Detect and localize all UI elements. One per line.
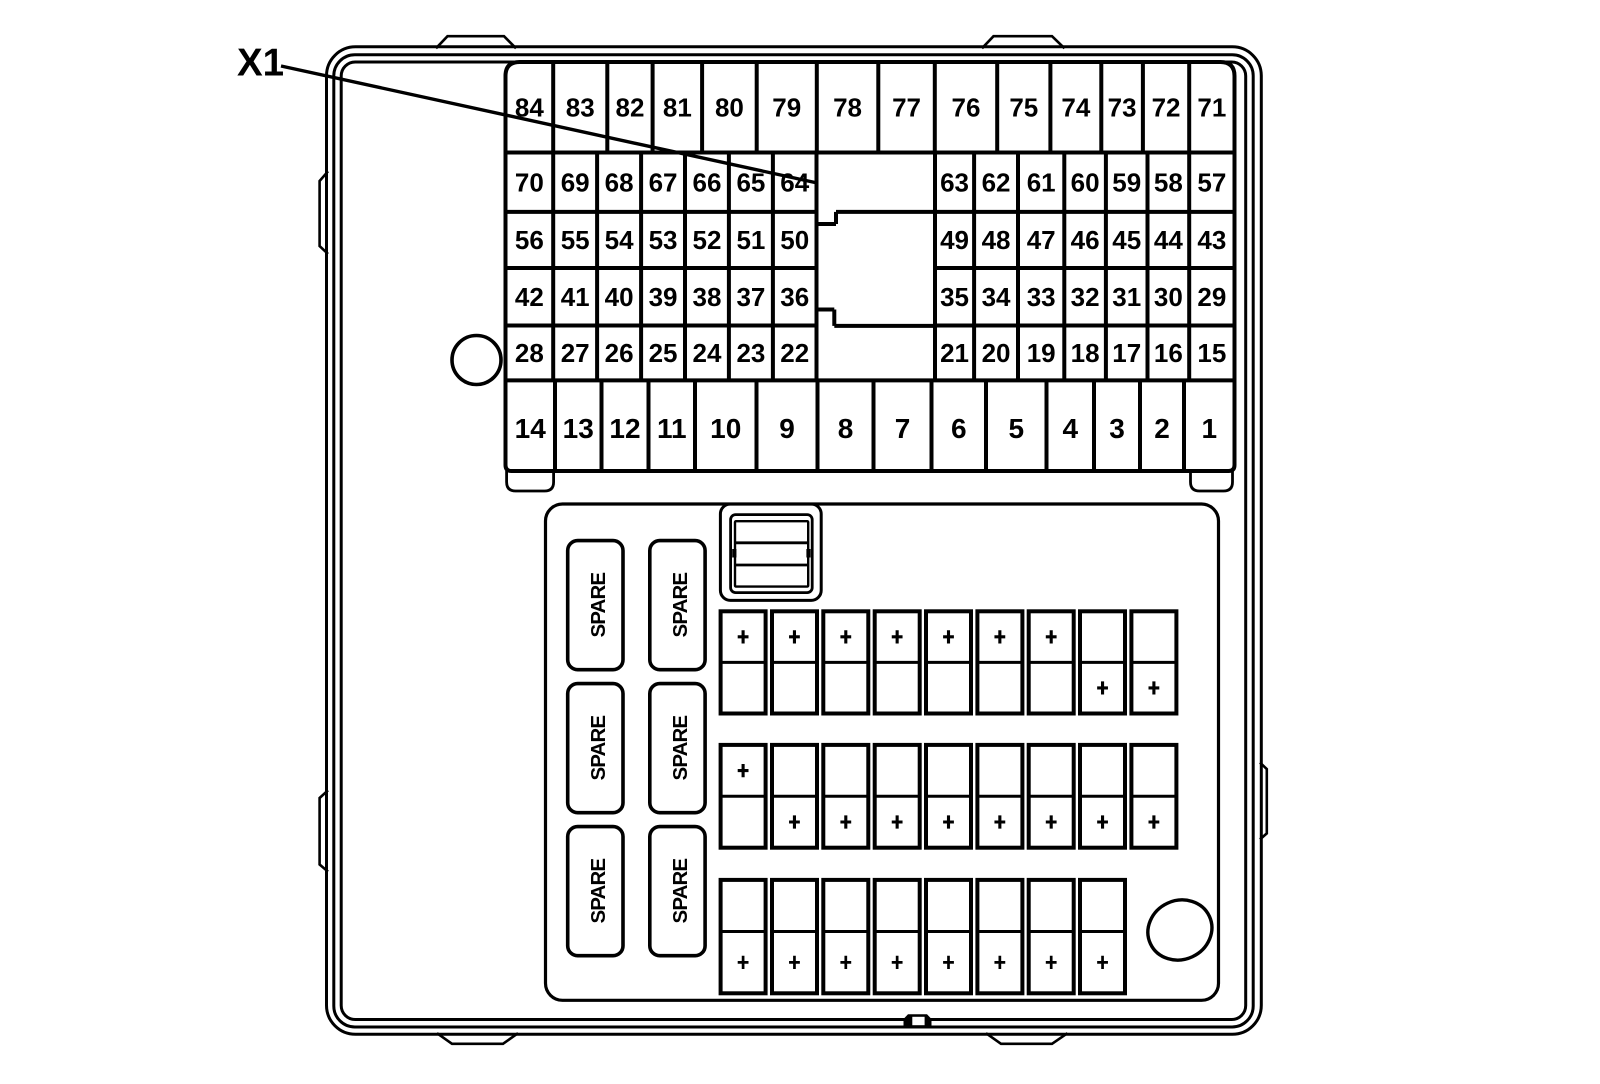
svg-text:76: 76	[952, 93, 981, 123]
svg-text:SPARE: SPARE	[587, 573, 610, 638]
svg-text:28: 28	[515, 338, 544, 368]
svg-text:X1: X1	[237, 42, 284, 85]
svg-text:12: 12	[609, 413, 640, 444]
svg-text:46: 46	[1071, 225, 1100, 255]
svg-text:73: 73	[1108, 93, 1137, 123]
svg-text:3: 3	[1109, 413, 1125, 444]
svg-text:59: 59	[1112, 167, 1141, 197]
svg-text:29: 29	[1197, 282, 1226, 312]
svg-text:48: 48	[982, 225, 1011, 255]
svg-text:71: 71	[1197, 93, 1226, 123]
svg-text:49: 49	[940, 225, 969, 255]
svg-text:80: 80	[715, 93, 744, 123]
svg-text:45: 45	[1112, 225, 1141, 255]
svg-text:65: 65	[736, 167, 765, 197]
svg-text:13: 13	[563, 413, 594, 444]
svg-text:56: 56	[515, 225, 544, 255]
svg-text:8: 8	[838, 413, 854, 444]
svg-text:81: 81	[663, 93, 692, 123]
svg-text:36: 36	[780, 282, 809, 312]
svg-text:47: 47	[1027, 225, 1056, 255]
svg-text:17: 17	[1112, 338, 1141, 368]
svg-text:43: 43	[1197, 225, 1226, 255]
svg-text:35: 35	[940, 282, 969, 312]
svg-text:58: 58	[1154, 167, 1183, 197]
svg-text:32: 32	[1071, 282, 1100, 312]
svg-text:62: 62	[982, 167, 1011, 197]
svg-text:SPARE: SPARE	[587, 859, 610, 924]
svg-text:64: 64	[780, 167, 809, 197]
svg-text:6: 6	[951, 413, 967, 444]
svg-text:SPARE: SPARE	[587, 716, 610, 781]
svg-text:SPARE: SPARE	[669, 859, 692, 924]
svg-text:1: 1	[1201, 413, 1217, 444]
svg-text:84: 84	[515, 93, 544, 123]
svg-text:79: 79	[772, 93, 801, 123]
svg-text:33: 33	[1027, 282, 1056, 312]
svg-text:2: 2	[1154, 413, 1170, 444]
svg-text:23: 23	[736, 338, 765, 368]
svg-text:69: 69	[561, 167, 590, 197]
svg-text:55: 55	[561, 225, 590, 255]
svg-text:27: 27	[561, 338, 590, 368]
svg-text:5: 5	[1008, 413, 1024, 444]
svg-text:SPARE: SPARE	[669, 573, 692, 638]
svg-text:9: 9	[779, 413, 795, 444]
svg-text:83: 83	[566, 93, 595, 123]
svg-text:21: 21	[940, 338, 969, 368]
svg-text:44: 44	[1154, 225, 1183, 255]
svg-text:4: 4	[1062, 413, 1078, 444]
svg-text:53: 53	[649, 225, 678, 255]
svg-text:22: 22	[780, 338, 809, 368]
svg-text:39: 39	[649, 282, 678, 312]
svg-text:63: 63	[940, 167, 969, 197]
svg-text:40: 40	[605, 282, 634, 312]
svg-text:30: 30	[1154, 282, 1183, 312]
svg-text:7: 7	[895, 413, 911, 444]
svg-text:37: 37	[736, 282, 765, 312]
svg-text:38: 38	[692, 282, 721, 312]
svg-text:11: 11	[657, 413, 687, 444]
svg-text:SPARE: SPARE	[669, 716, 692, 781]
svg-text:54: 54	[605, 225, 634, 255]
svg-text:78: 78	[833, 93, 862, 123]
svg-text:20: 20	[982, 338, 1011, 368]
svg-text:34: 34	[982, 282, 1011, 312]
svg-text:75: 75	[1009, 93, 1038, 123]
svg-text:41: 41	[561, 282, 590, 312]
svg-text:16: 16	[1154, 338, 1183, 368]
svg-text:51: 51	[736, 225, 765, 255]
svg-text:14: 14	[515, 413, 547, 444]
svg-text:67: 67	[649, 167, 678, 197]
svg-text:15: 15	[1197, 338, 1226, 368]
svg-text:74: 74	[1061, 93, 1090, 123]
svg-text:18: 18	[1071, 338, 1100, 368]
svg-text:82: 82	[615, 93, 644, 123]
svg-text:10: 10	[710, 413, 741, 444]
svg-text:57: 57	[1197, 167, 1226, 197]
svg-text:42: 42	[515, 282, 544, 312]
svg-text:72: 72	[1152, 93, 1181, 123]
svg-text:25: 25	[649, 338, 678, 368]
svg-text:50: 50	[780, 225, 809, 255]
svg-text:31: 31	[1112, 282, 1141, 312]
svg-text:61: 61	[1027, 167, 1056, 197]
svg-text:19: 19	[1027, 338, 1056, 368]
svg-text:70: 70	[515, 167, 544, 197]
svg-text:66: 66	[692, 167, 721, 197]
svg-text:68: 68	[605, 167, 634, 197]
svg-text:24: 24	[692, 338, 721, 368]
svg-text:26: 26	[605, 338, 634, 368]
svg-text:77: 77	[892, 93, 921, 123]
svg-text:60: 60	[1071, 167, 1100, 197]
svg-text:52: 52	[692, 225, 721, 255]
